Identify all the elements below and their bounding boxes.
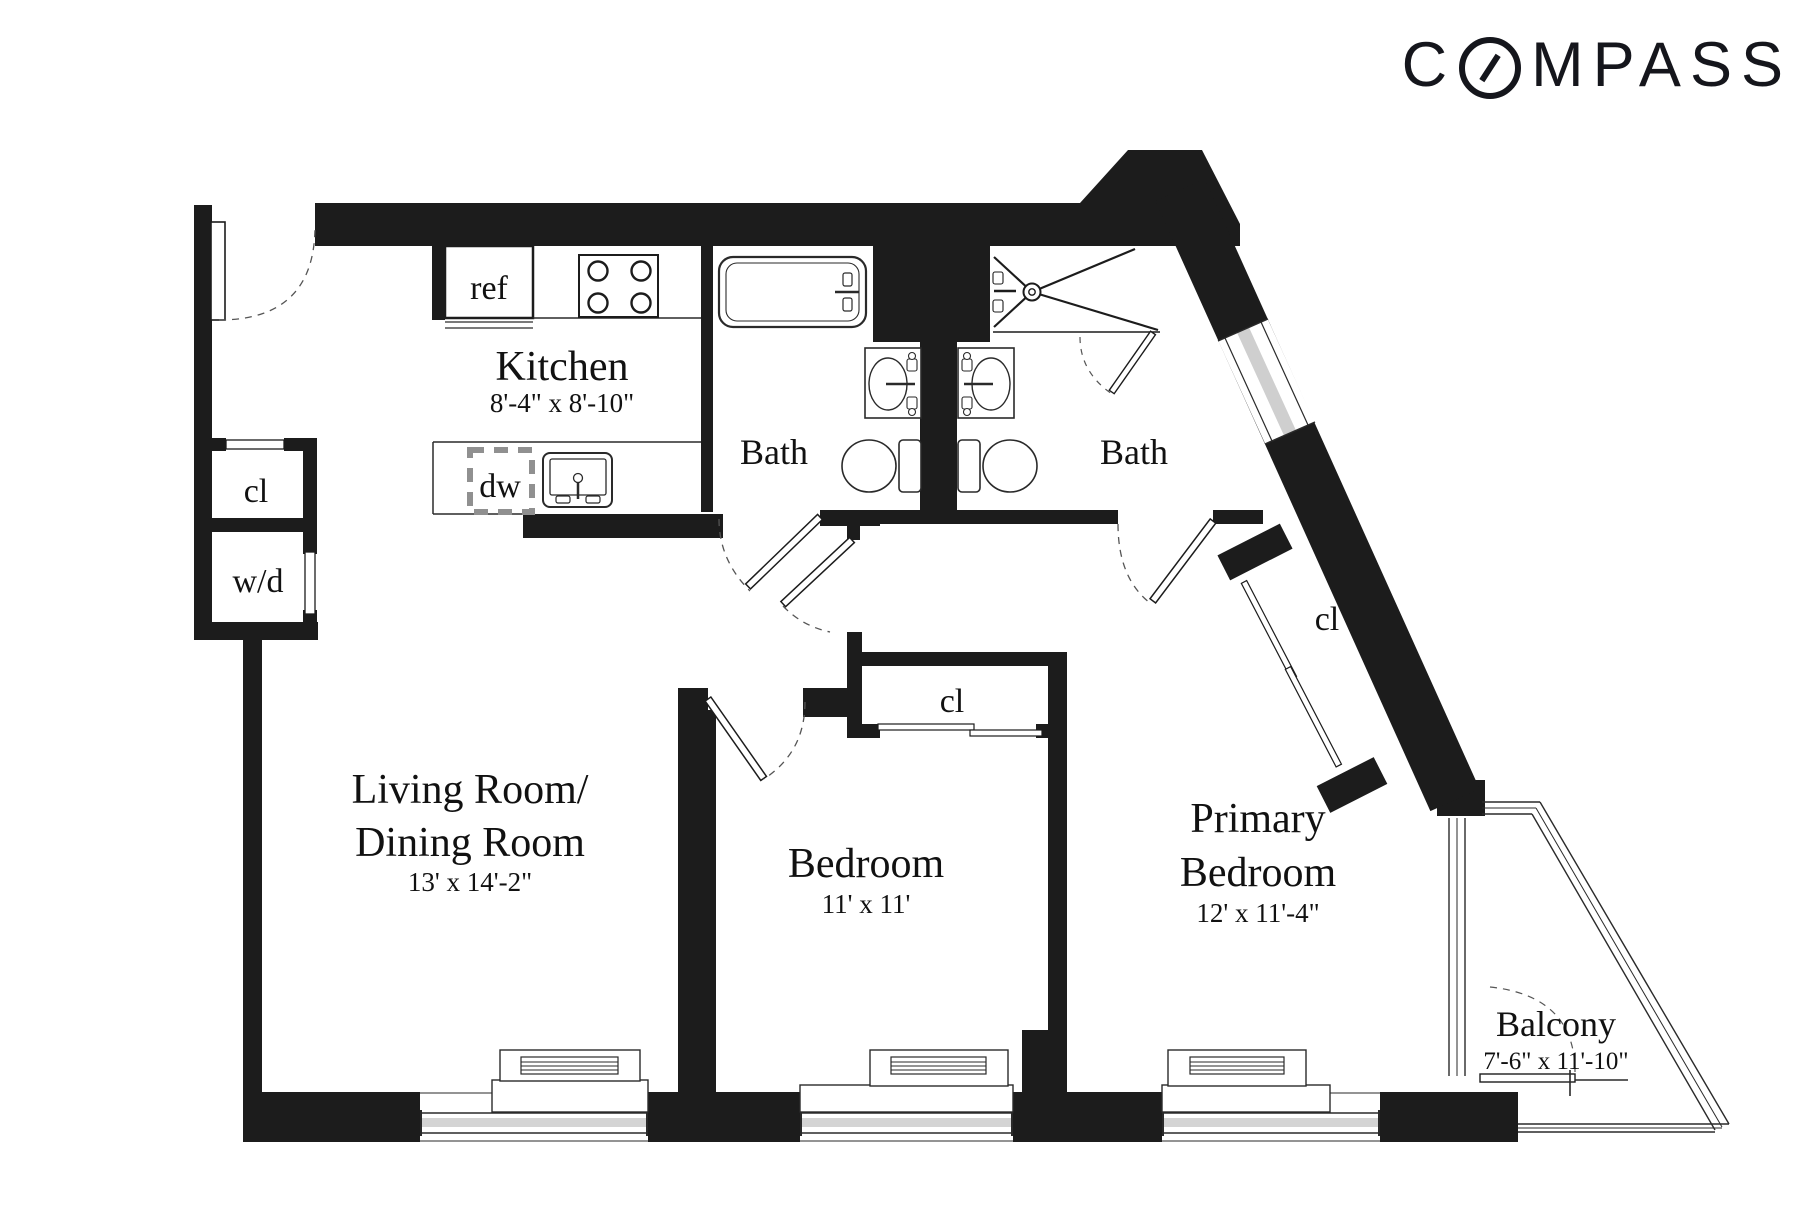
wall-wd-right-upper [303,518,317,554]
balcony-dims: 7'-6" x 11'-10" [1483,1048,1628,1075]
closet-entry-door [226,440,284,449]
living-label-line2: Dining Room [355,820,585,866]
wall-diagonal [1180,190,1455,800]
wall-bedroom-primary [1048,652,1067,1092]
ptac-primary [1162,1050,1330,1112]
primary-glass-wall [1449,818,1465,1076]
shower-door [1080,331,1155,394]
closet-bedroom-slider-1 [878,724,974,730]
closet-bedroom-slider-2 [970,730,1042,736]
floorplan-drawing: Kitchen 8'-4" x 8'-10" ref dw cl w/d Bat… [0,0,1800,1212]
wall-closet-entry-cap-left [194,438,226,451]
wall-top [315,203,1150,246]
kitchen-label: Kitchen [496,344,629,390]
washer-dryer-label: w/d [233,563,284,600]
wall-bedroom-top-stub [803,688,850,717]
wall-wd-bottom [194,622,318,640]
wall-closet-bedroom-left [847,632,862,738]
refrigerator-label: ref [470,270,508,307]
closet-primary-slider-2 [1285,667,1341,767]
entry-door [211,222,315,320]
wall-bottom-1 [243,1092,420,1142]
bath1-label: Bath [740,432,808,472]
wall-left-lower [243,640,262,1092]
wall-closet-bedroom-cap-l [847,724,880,738]
wall-shaft-column [920,342,957,524]
logo-letter-c: C [1402,34,1457,97]
wall-left-upper [194,205,212,640]
bath2-door [1118,519,1216,603]
wall-bottom-3 [1013,1092,1162,1142]
wall-shaft [873,246,990,342]
logo-letters-mpass: MPASS [1531,34,1792,97]
floorplan-page: Kitchen 8'-4" x 8'-10" ref dw cl w/d Bat… [0,0,1800,1212]
dishwasher-label: dw [479,468,521,505]
kitchen-sink [543,453,612,507]
bath1-toilet [842,440,921,492]
primary-label-line2: Bedroom [1180,850,1337,896]
wall-kitchen-knee [523,514,723,538]
wall-bath2-door-cap [1213,510,1263,524]
wall-living-bedroom [678,710,716,1092]
compass-o-icon [1459,37,1521,99]
wall-closet-primary-cap-bottom [1317,757,1388,813]
bedroom-label: Bedroom [788,841,945,887]
kitchen-dims: 8'-4" x 8'-10" [490,388,634,418]
ptac-living [492,1050,648,1112]
wall-bath1-jamb [820,510,880,526]
wall-kitchen-bath [701,246,713,512]
hall-door [781,537,855,632]
wall-bedroom-primary-base [1022,1030,1067,1092]
ptac-units [492,1050,1330,1112]
stove [579,255,658,317]
bathtub [719,257,866,327]
primary-dims: 12' x 11'-4" [1196,898,1319,928]
ptac-bedroom [800,1050,1013,1112]
wd-door [305,552,315,614]
wall-closet-entry-right [303,438,317,532]
bath2-sink [958,348,1014,418]
bedroom-door [705,697,805,780]
bath2-toilet [958,440,1037,492]
living-dims: 13' x 14'-2" [408,867,532,897]
compass-logo: CMPASS [1402,34,1792,97]
closet-bedroom-label: cl [940,683,965,720]
closet-entry-label: cl [244,473,269,510]
compass-needle-icon [1479,53,1500,81]
wall-bath2-south [880,510,1118,524]
closet-primary-label: cl [1315,601,1340,638]
bath2-label: Bath [1100,432,1168,472]
closet-primary-slider-1 [1241,581,1296,680]
wall-bottom-2 [648,1092,800,1142]
shower [993,249,1160,332]
living-label-line1: Living Room/ [352,767,589,813]
bedroom-dims: 11' x 11' [822,889,911,919]
wall-closet-bedroom-top [850,652,1062,666]
primary-label-line1: Primary [1190,796,1325,842]
bath1-sink [865,348,921,418]
wall-bottom-4 [1380,1092,1518,1142]
wall-ref-left [432,242,445,320]
wall-closet-primary-cap-top [1217,524,1292,581]
wall-closet-entry-bottom [194,518,317,532]
balcony-label: Balcony [1496,1004,1616,1044]
